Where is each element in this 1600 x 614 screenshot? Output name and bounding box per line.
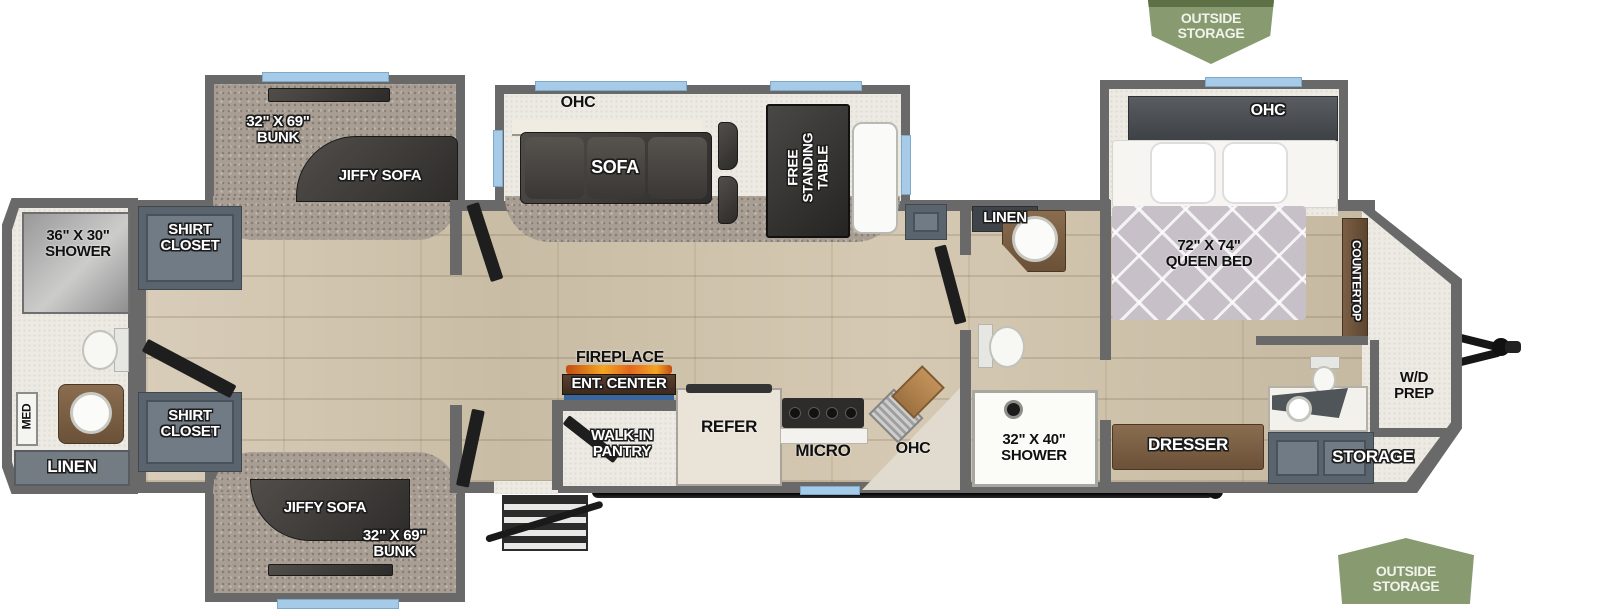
- hitch-coupler-stub: [1505, 341, 1521, 353]
- sofa-label: SOFA: [575, 158, 655, 177]
- bunk-top-label: 32" X 69" BUNK: [218, 114, 338, 146]
- bunk-top-shelf: [268, 88, 390, 102]
- mid-bath-wall-left-lower: [960, 330, 971, 493]
- wd-wall-left: [1370, 340, 1379, 437]
- mid-toilet-bowl: [989, 326, 1025, 368]
- mid-linen-label: LINEN: [972, 210, 1038, 226]
- entry-door-opening: [494, 481, 558, 494]
- storage-label: STORAGE: [1318, 448, 1428, 466]
- outside-storage-badge-bottom: OUTSIDE STORAGE: [1338, 538, 1474, 604]
- refrigerator-top: [686, 384, 772, 393]
- pillow: [1222, 142, 1288, 204]
- dining-chair: [718, 176, 738, 224]
- rear-sink-bowl: [70, 392, 112, 434]
- bunkroom-wall-top: [450, 200, 462, 275]
- sofa-cushion: [648, 137, 707, 199]
- refrigerator: [676, 388, 782, 486]
- micro-label: MICRO: [786, 442, 860, 460]
- window-strip: [277, 599, 399, 609]
- window-strip: [493, 130, 503, 187]
- pillow: [1150, 142, 1216, 204]
- cooktop: [782, 398, 864, 428]
- storage-cabinet-door: [1276, 440, 1319, 476]
- hallway-cabinet: [905, 204, 947, 240]
- shirt-closet-top-label: SHIRT CLOSET: [142, 222, 238, 254]
- ent-center-label: ENT. CENTER: [562, 376, 676, 392]
- badge-top-band: [1148, 0, 1274, 7]
- rear-shower-label: 36" X 30" SHOWER: [28, 228, 128, 260]
- window-strip: [262, 72, 389, 82]
- refer-label: REFER: [682, 418, 776, 436]
- countertop-label: COUNTERTOP: [1350, 215, 1363, 345]
- mid-bath-wall-right-upper: [1100, 200, 1111, 360]
- window-strip: [770, 81, 862, 91]
- living-ohc-label: OHC: [548, 94, 608, 111]
- rv-floorplan: OUTSIDE STORAGE OUTSIDE STORAGE 36" X 30…: [0, 0, 1600, 614]
- queen-bed-label: 72" X 74" QUEEN BED: [1139, 238, 1279, 270]
- wd-prep-label: W/D PREP: [1386, 370, 1442, 402]
- jiffy-sofa-top-label: JIFFY SOFA: [310, 168, 450, 184]
- window-strip: [535, 81, 687, 91]
- dining-chair: [718, 122, 738, 170]
- bench-seat: [852, 122, 898, 234]
- burner: [808, 407, 820, 419]
- fireplace-label: FIREPLACE: [560, 349, 680, 366]
- rear-toilet-bowl: [82, 330, 118, 370]
- window-strip: [800, 486, 860, 495]
- rear-linen-label: LINEN: [22, 458, 122, 476]
- burner: [789, 407, 801, 419]
- free-standing-table-label: FREE STANDING TABLE: [785, 98, 830, 238]
- mid-bath-wall-left-upper: [960, 200, 971, 255]
- outside-storage-badge-top: OUTSIDE STORAGE: [1148, 0, 1274, 64]
- bunk-bottom-label: 32" X 69" BUNK: [332, 528, 457, 560]
- front-sink-bowl: [1286, 396, 1312, 422]
- bedroom-ohc-cabinet: [1128, 96, 1338, 141]
- window-strip: [901, 135, 911, 195]
- mid-bath-wall-right-lower: [1100, 420, 1111, 493]
- fireplace-flame: [566, 365, 672, 374]
- wd-wall-bottom: [1370, 428, 1454, 437]
- burner: [845, 407, 857, 419]
- pantry-label: WALK-IN PANTRY: [566, 428, 678, 460]
- bunk-bottom-shelf: [268, 564, 393, 576]
- mid-shower-head: [1004, 400, 1023, 419]
- dresser-label: DRESSER: [1118, 436, 1258, 454]
- hallway-cabinet-door: [913, 212, 939, 232]
- window-strip: [1205, 77, 1302, 87]
- outside-storage-bottom-label: OUTSIDE STORAGE: [1373, 564, 1440, 594]
- mid-shower-label: 32" X 40" SHOWER: [974, 432, 1094, 464]
- pantry-wall-top: [552, 400, 680, 411]
- burner: [826, 407, 838, 419]
- pantry-wall-left: [552, 400, 563, 490]
- jiffy-sofa-bottom-label: JIFFY SOFA: [255, 500, 395, 516]
- outside-storage-top-label: OUTSIDE STORAGE: [1178, 11, 1245, 41]
- bunk-top-connector: [213, 196, 457, 240]
- rear-med-label: MED: [21, 386, 34, 446]
- bedroom-ohc-label: OHC: [1238, 102, 1298, 119]
- kitchen-ohc-label: OHC: [878, 440, 948, 457]
- shirt-closet-bottom-label: SHIRT CLOSET: [142, 408, 238, 440]
